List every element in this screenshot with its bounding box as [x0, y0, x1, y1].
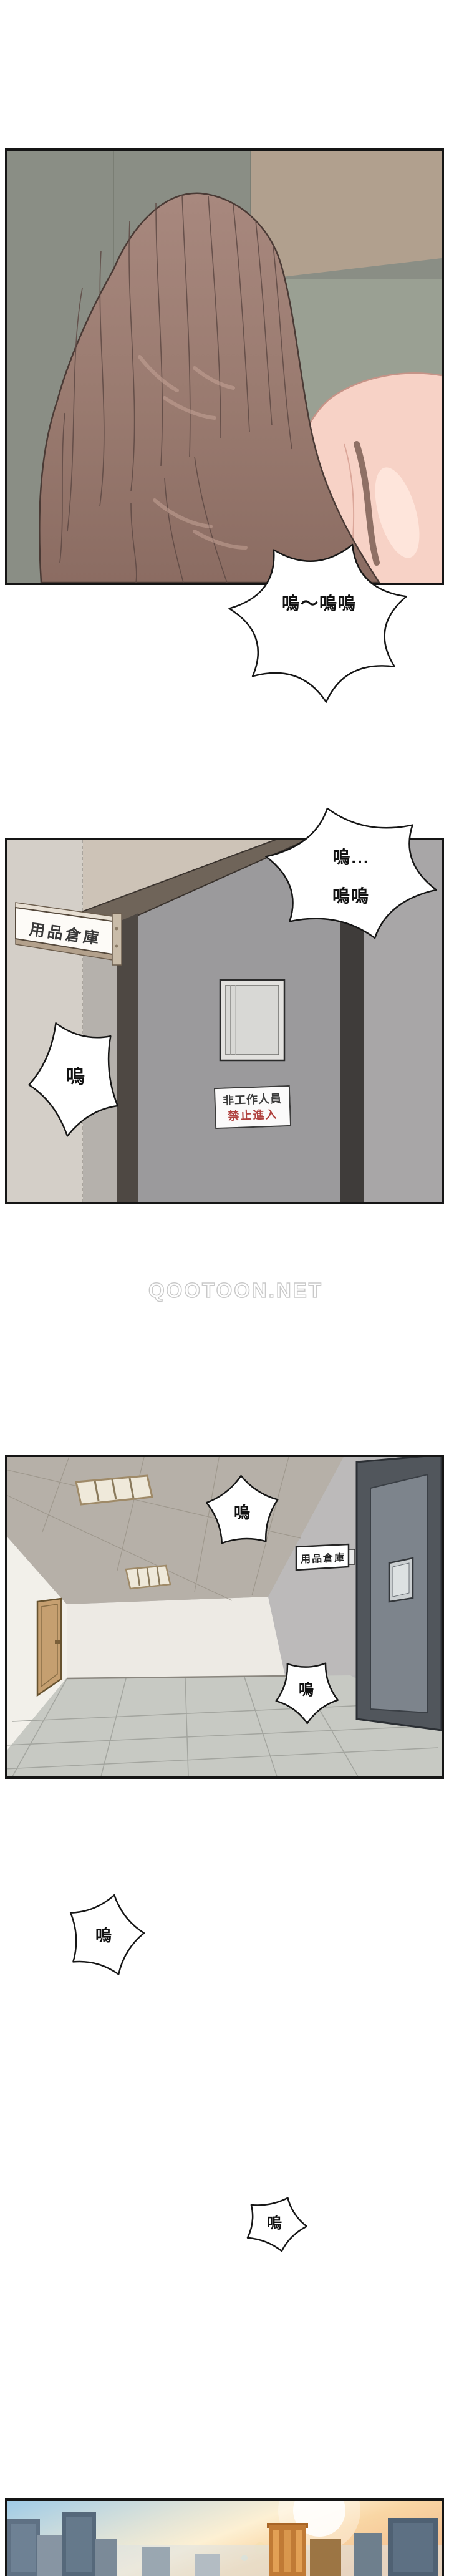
speech-bubble-sob-3: 嗚 [26, 1015, 126, 1140]
storage-plaque-label-2: 用品倉庫 [295, 1549, 352, 1566]
door-warning-sign: 非工作人員 禁止進入 [214, 1085, 291, 1129]
bubble-text: 嗚 [241, 2216, 309, 2231]
speech-bubble-sob-5: 嗚 [273, 1655, 341, 1725]
speech-bubble-sob-1: 嗚～嗚嗚 [226, 536, 413, 705]
bubble-text: 嗚 [203, 1504, 282, 1521]
back-wall [67, 1597, 285, 1678]
webtoon-page: 用品倉庫 非工作人員 禁止進入 QOOTOON.NET [0, 0, 449, 2576]
panel-4-art [7, 2501, 442, 2576]
bubble-text-line-2: 嗚嗚 [261, 888, 442, 905]
panel-1-art [7, 151, 442, 583]
panel-4-city-skyline [5, 2498, 444, 2576]
speech-bubble-sob-2: 嗚... 嗚嗚 [261, 803, 442, 943]
storage-door-right [357, 1457, 442, 1730]
bubble-text-line-1: 嗚... [261, 849, 442, 866]
ceiling-light-2 [126, 1566, 170, 1589]
bubble-text: 嗚～嗚嗚 [226, 595, 413, 613]
warning-line-2: 禁止進入 [217, 1106, 289, 1124]
bubble-shape [261, 803, 442, 943]
speech-bubble-sob-7: 嗚 [241, 2194, 309, 2254]
speech-bubble-sob-4: 嗚 [203, 1474, 282, 1551]
watermark: QOOTOON.NET [148, 1279, 313, 1302]
door-window [220, 980, 284, 1060]
warning-line-1: 非工作人員 [216, 1090, 288, 1109]
panel-1-woman-back [5, 148, 444, 585]
speech-bubble-sob-6: 嗚 [62, 1892, 146, 1979]
bubble-text: 嗚 [26, 1068, 126, 1087]
wooden-door [37, 1599, 61, 1695]
bubble-text: 嗚 [62, 1927, 146, 1944]
bubble-shape [226, 536, 413, 705]
bubble-text: 嗚 [273, 1683, 341, 1698]
